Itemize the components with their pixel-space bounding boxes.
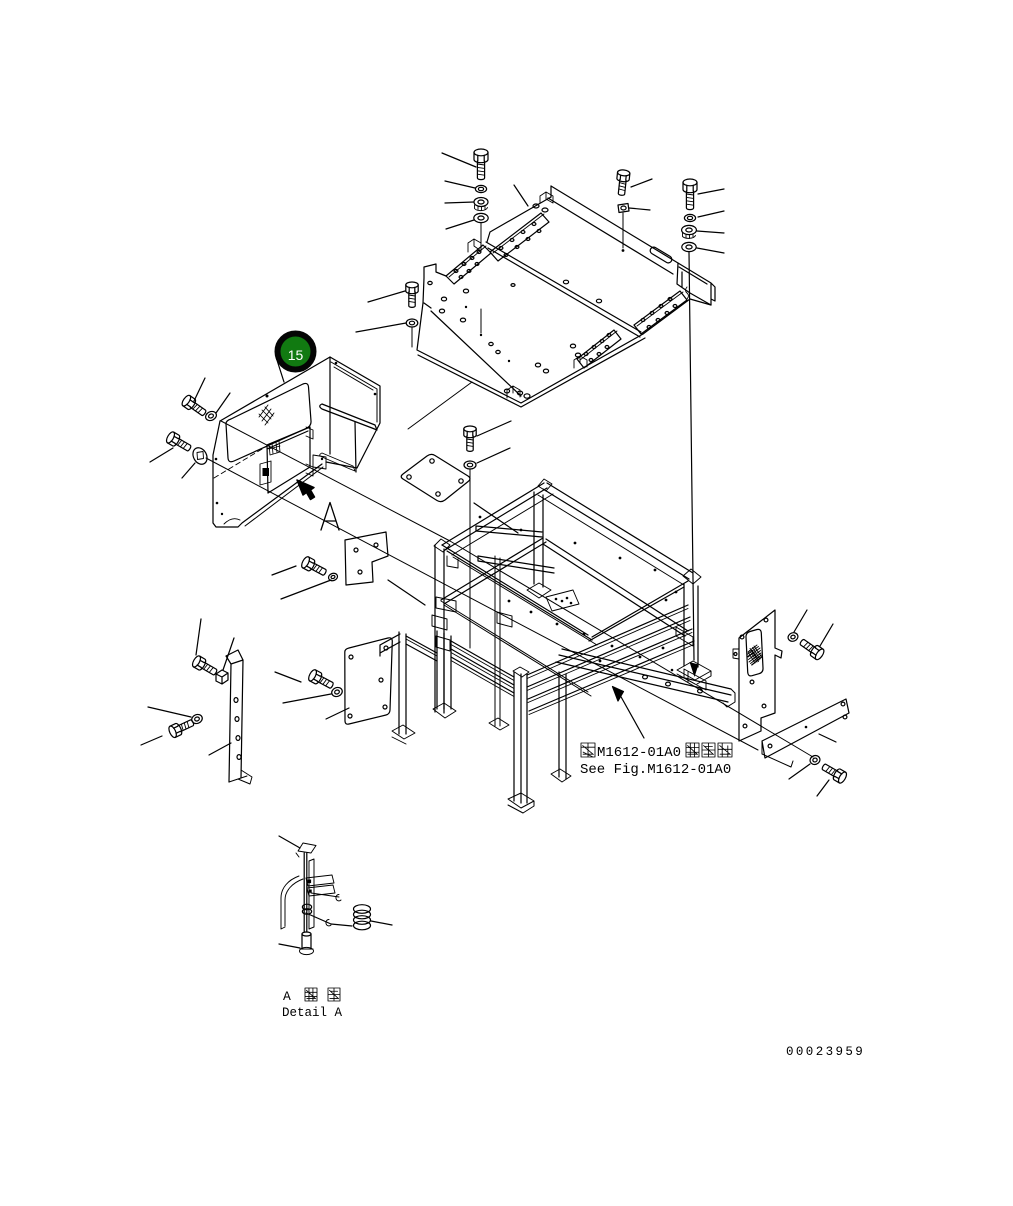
svg-text:A: A xyxy=(283,989,291,1004)
svg-text:15: 15 xyxy=(288,347,304,363)
svg-text:00023959: 00023959 xyxy=(786,1045,865,1059)
svg-text:M1612-01A0: M1612-01A0 xyxy=(597,745,681,761)
svg-text:See Fig.M1612-01A0: See Fig.M1612-01A0 xyxy=(580,762,731,778)
svg-text:Detail A: Detail A xyxy=(282,1006,343,1020)
